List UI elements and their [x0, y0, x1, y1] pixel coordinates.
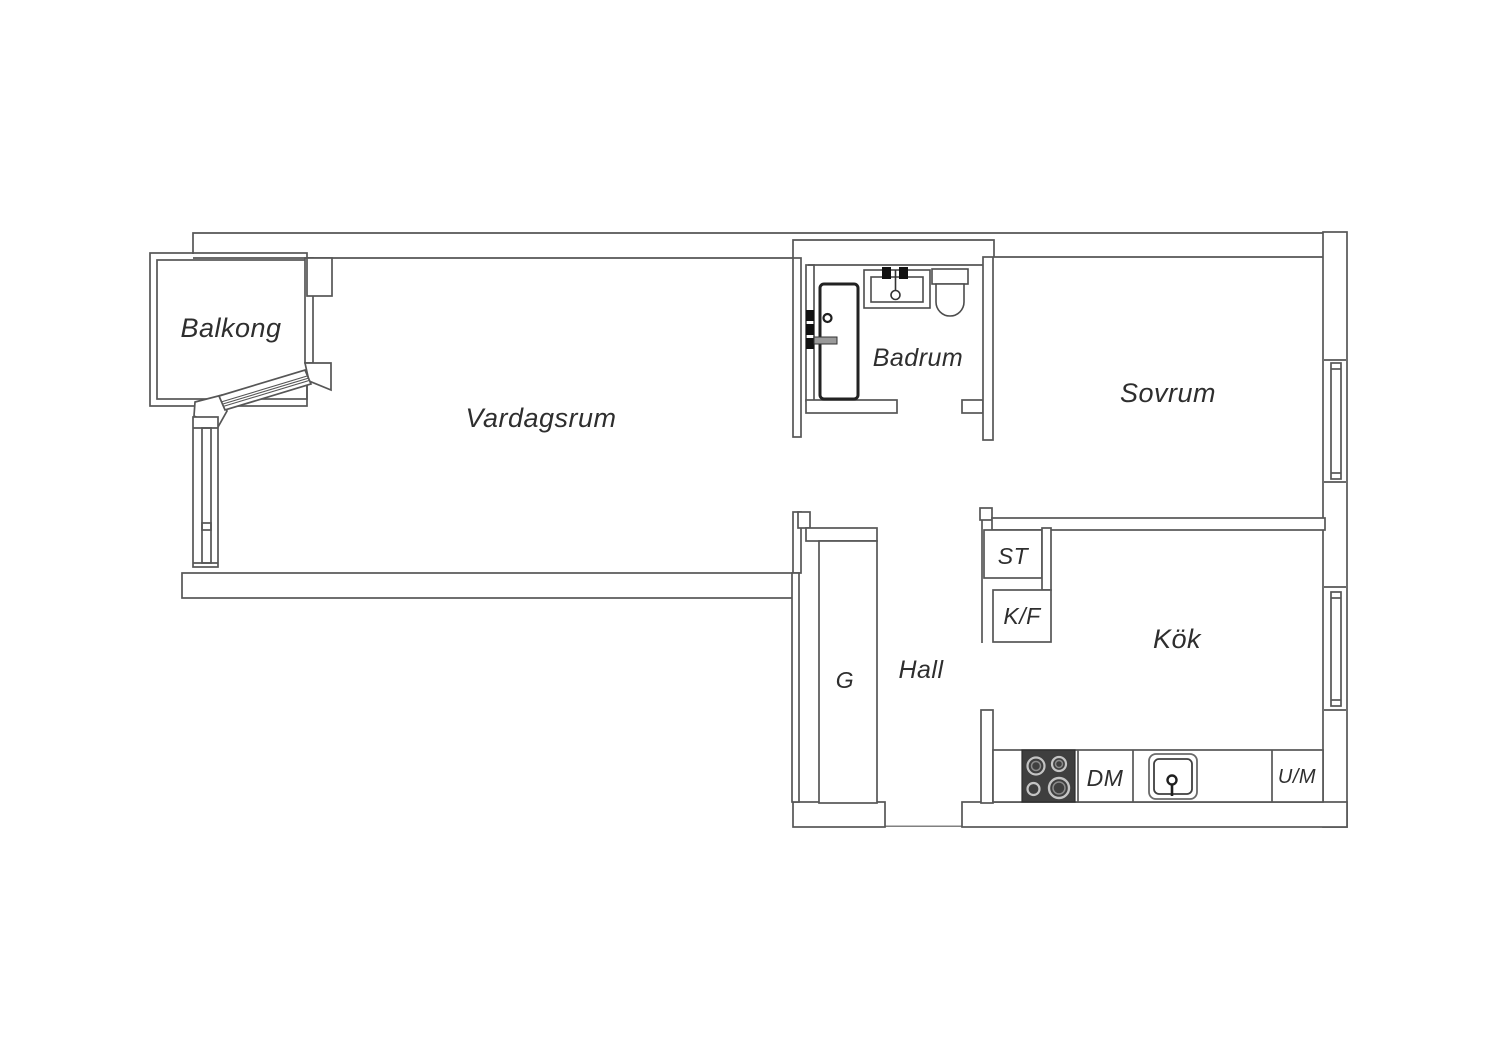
label-dishwasher: DM	[1087, 765, 1124, 791]
bathroom-sink-icon	[864, 267, 930, 308]
room-label-kitchen: Kök	[1153, 624, 1202, 654]
exterior-wall-right	[1323, 232, 1347, 827]
label-closet-st: ST	[998, 543, 1030, 569]
room-label-balcony: Balkong	[180, 313, 281, 343]
toilet-icon	[932, 269, 968, 316]
room-label-bathroom: Badrum	[873, 344, 964, 372]
floor-plan-canvas: Balkong Vardagsrum Badrum Sovrum Kök Hal…	[0, 0, 1500, 1060]
kitchen-sink-icon	[1149, 754, 1197, 799]
bedroom-window-icon	[1324, 360, 1346, 482]
room-label-hall: Hall	[898, 656, 944, 684]
label-wardrobe: G	[836, 667, 854, 693]
door-knob-icon	[824, 314, 832, 322]
label-washing-machine: U/M	[1278, 766, 1316, 788]
balcony-wall	[305, 258, 332, 363]
exterior-wall-top	[193, 233, 1346, 258]
floor-plan: Balkong Vardagsrum Badrum Sovrum Kök Hal…	[0, 0, 1500, 1060]
exterior-wall-bottom	[793, 802, 1347, 827]
room-label-living-room: Vardagsrum	[465, 403, 616, 433]
room-label-bedroom: Sovrum	[1120, 378, 1216, 408]
wardrobe-cabinet	[806, 528, 877, 803]
stove-icon	[1022, 750, 1075, 802]
exterior-wall-living-room-bottom	[182, 573, 795, 598]
kitchen-window-icon	[1324, 587, 1346, 710]
label-fridge-freezer: K/F	[1003, 603, 1042, 629]
living-room-window-icon	[193, 417, 218, 567]
kitchen-counter	[993, 750, 1323, 802]
door-handle-icon	[814, 337, 837, 344]
